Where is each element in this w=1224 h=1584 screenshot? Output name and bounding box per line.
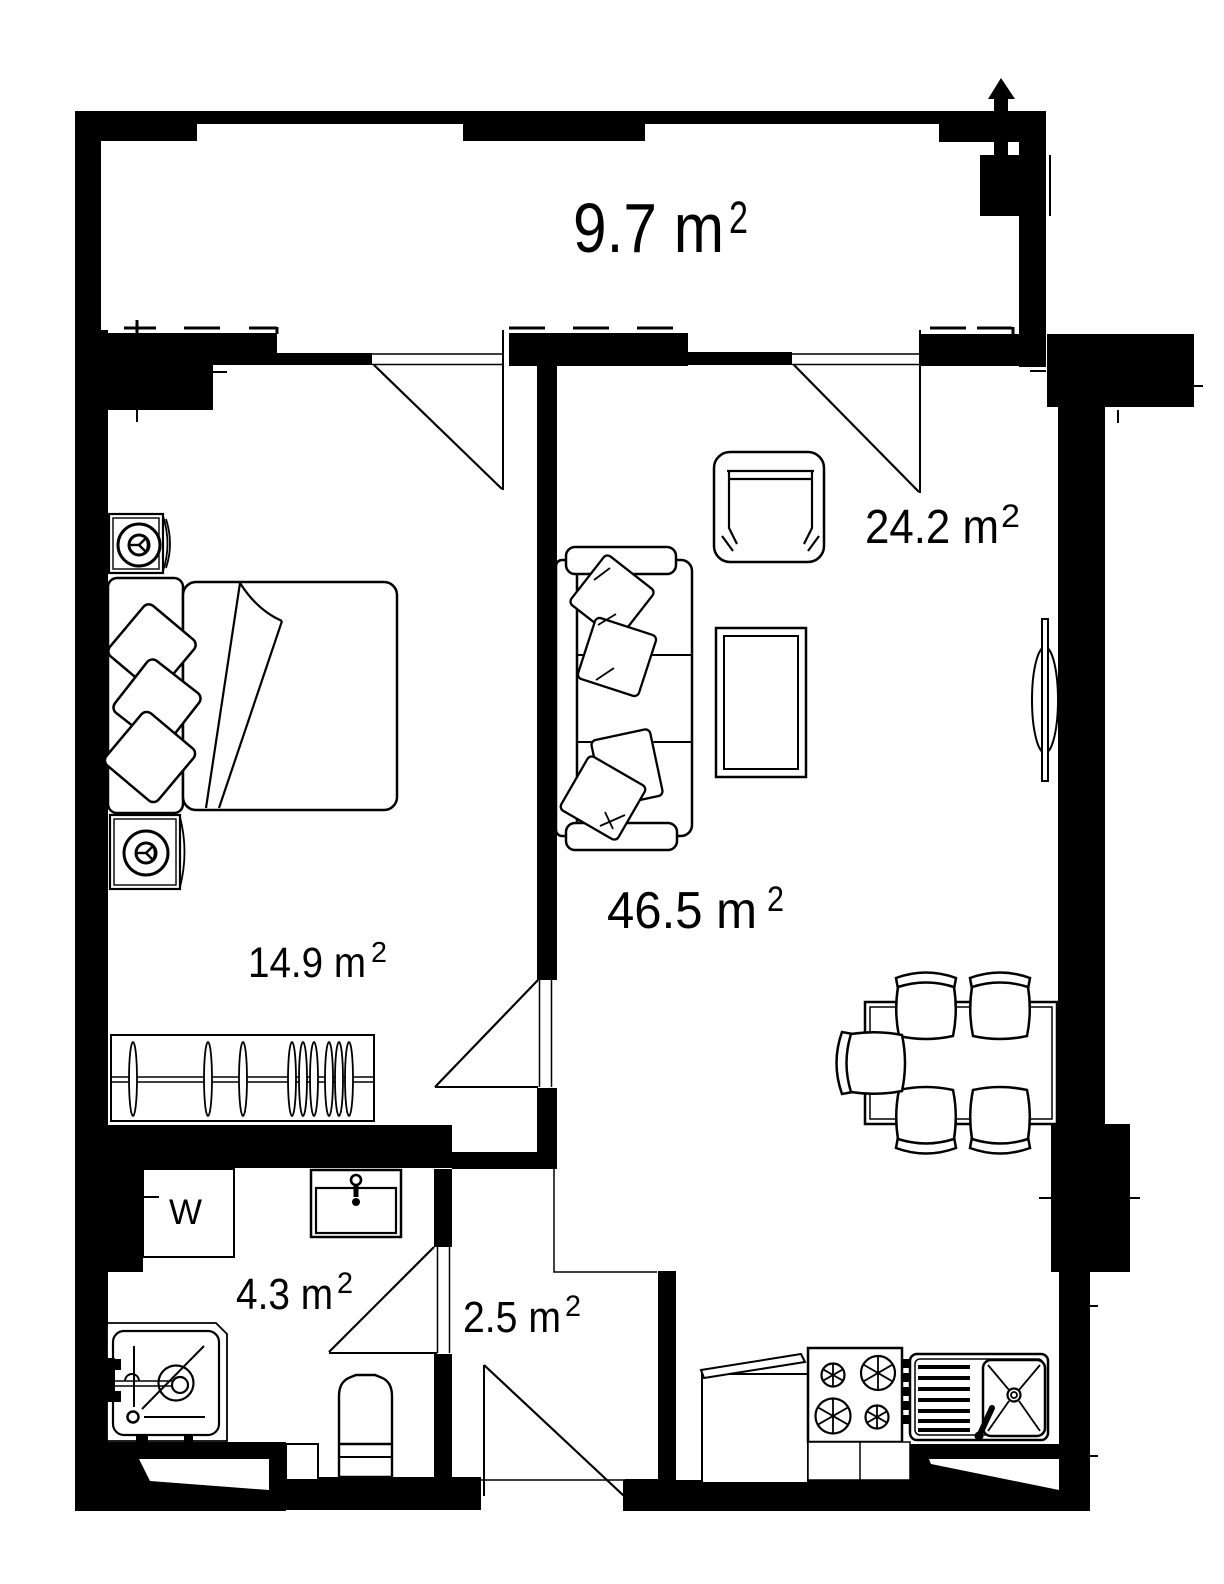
svg-text:46.5 m: 46.5 m	[607, 882, 757, 940]
svg-text:W: W	[169, 1193, 202, 1232]
svg-text:4.3 m: 4.3 m	[236, 1270, 333, 1319]
svg-text:2: 2	[1001, 498, 1020, 534]
svg-text:2: 2	[729, 192, 748, 243]
svg-text:2.5 m: 2.5 m	[463, 1293, 561, 1342]
svg-text:14.9 m: 14.9 m	[248, 939, 366, 987]
svg-text:2: 2	[337, 1267, 353, 1300]
svg-text:24.2 m: 24.2 m	[865, 501, 999, 554]
svg-text:2: 2	[371, 937, 387, 969]
svg-text:9.7 m: 9.7 m	[573, 189, 724, 267]
svg-text:2: 2	[565, 1290, 581, 1323]
svg-text:2: 2	[767, 880, 784, 919]
